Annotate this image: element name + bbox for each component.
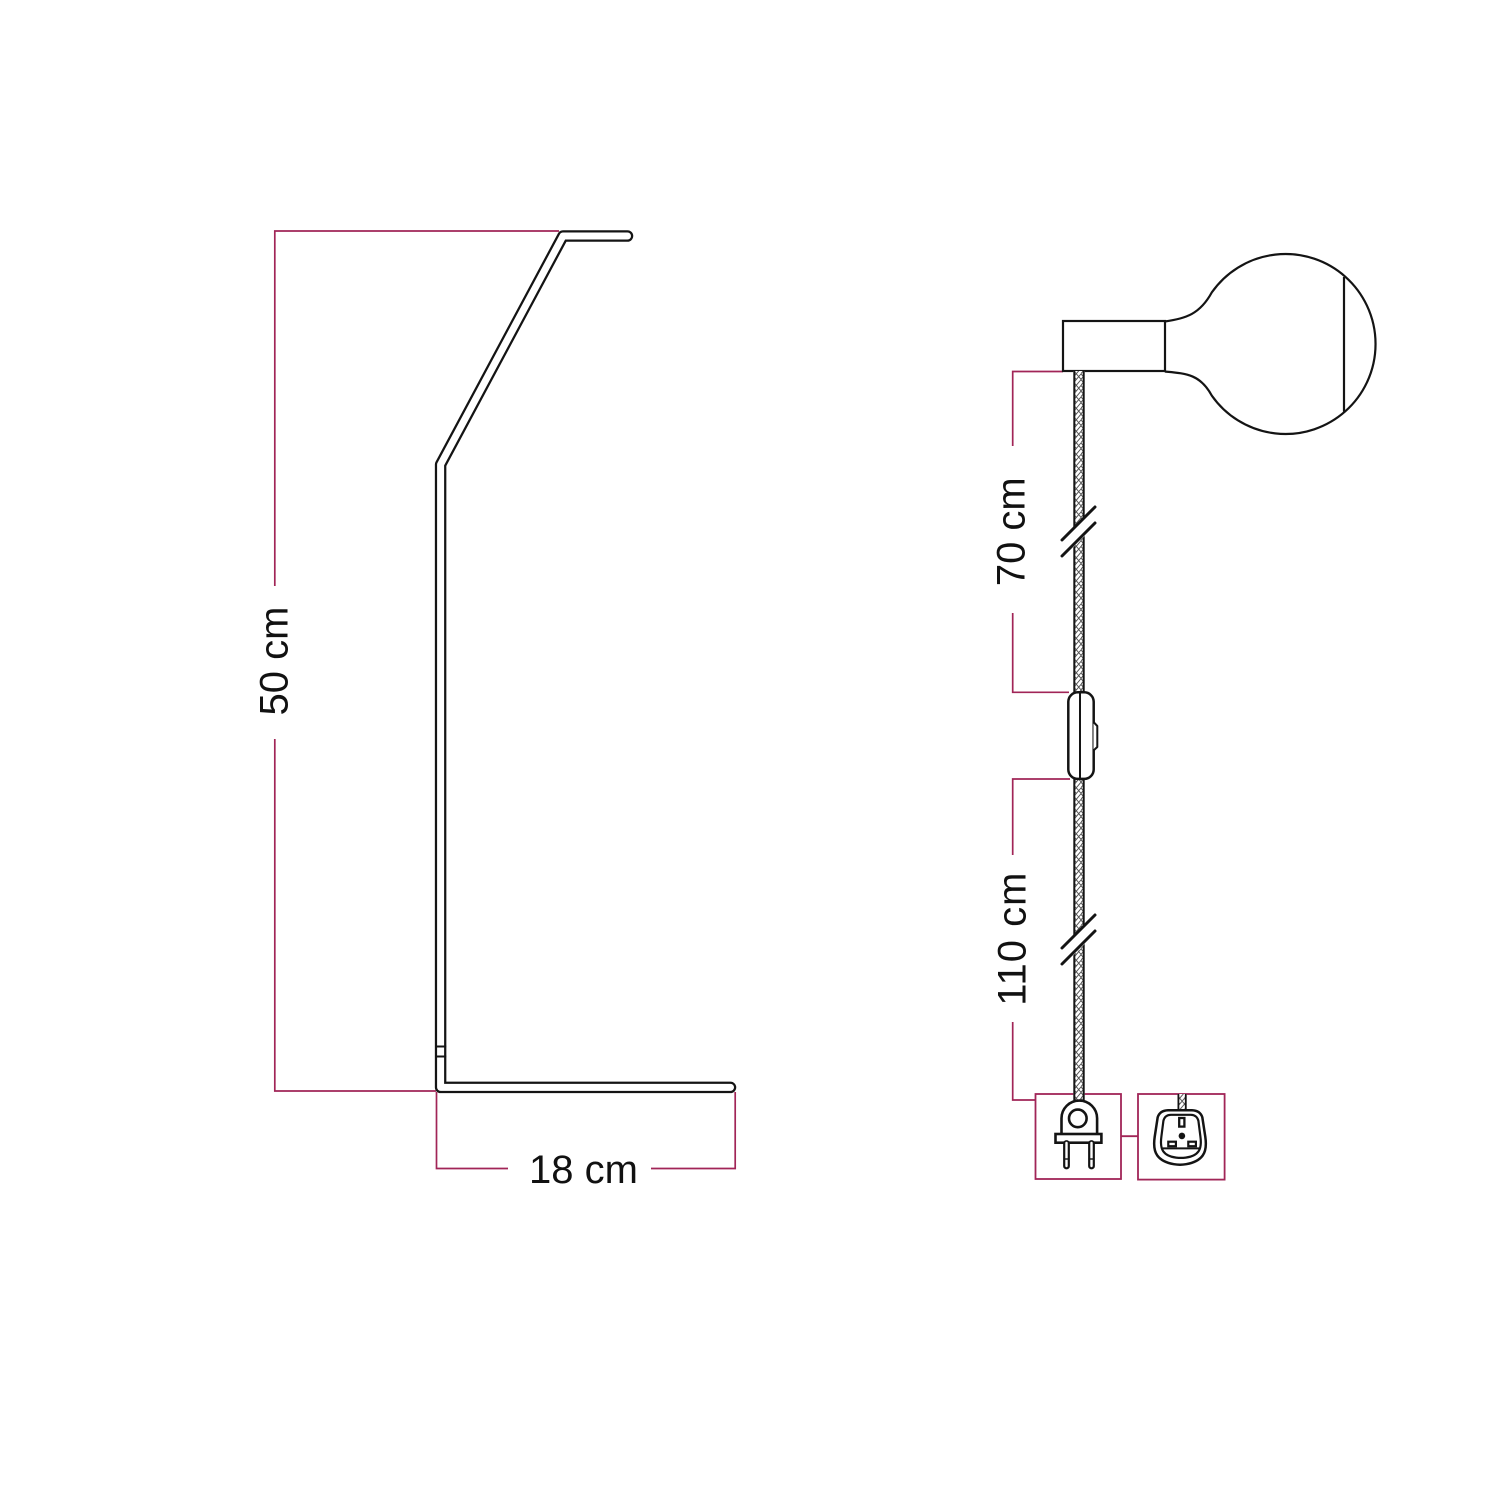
svg-text:70 cm: 70 cm	[990, 477, 1034, 586]
svg-text:50 cm: 50 cm	[253, 607, 297, 716]
svg-text:18 cm: 18 cm	[529, 1148, 638, 1192]
svg-text:110 cm: 110 cm	[991, 872, 1035, 1006]
